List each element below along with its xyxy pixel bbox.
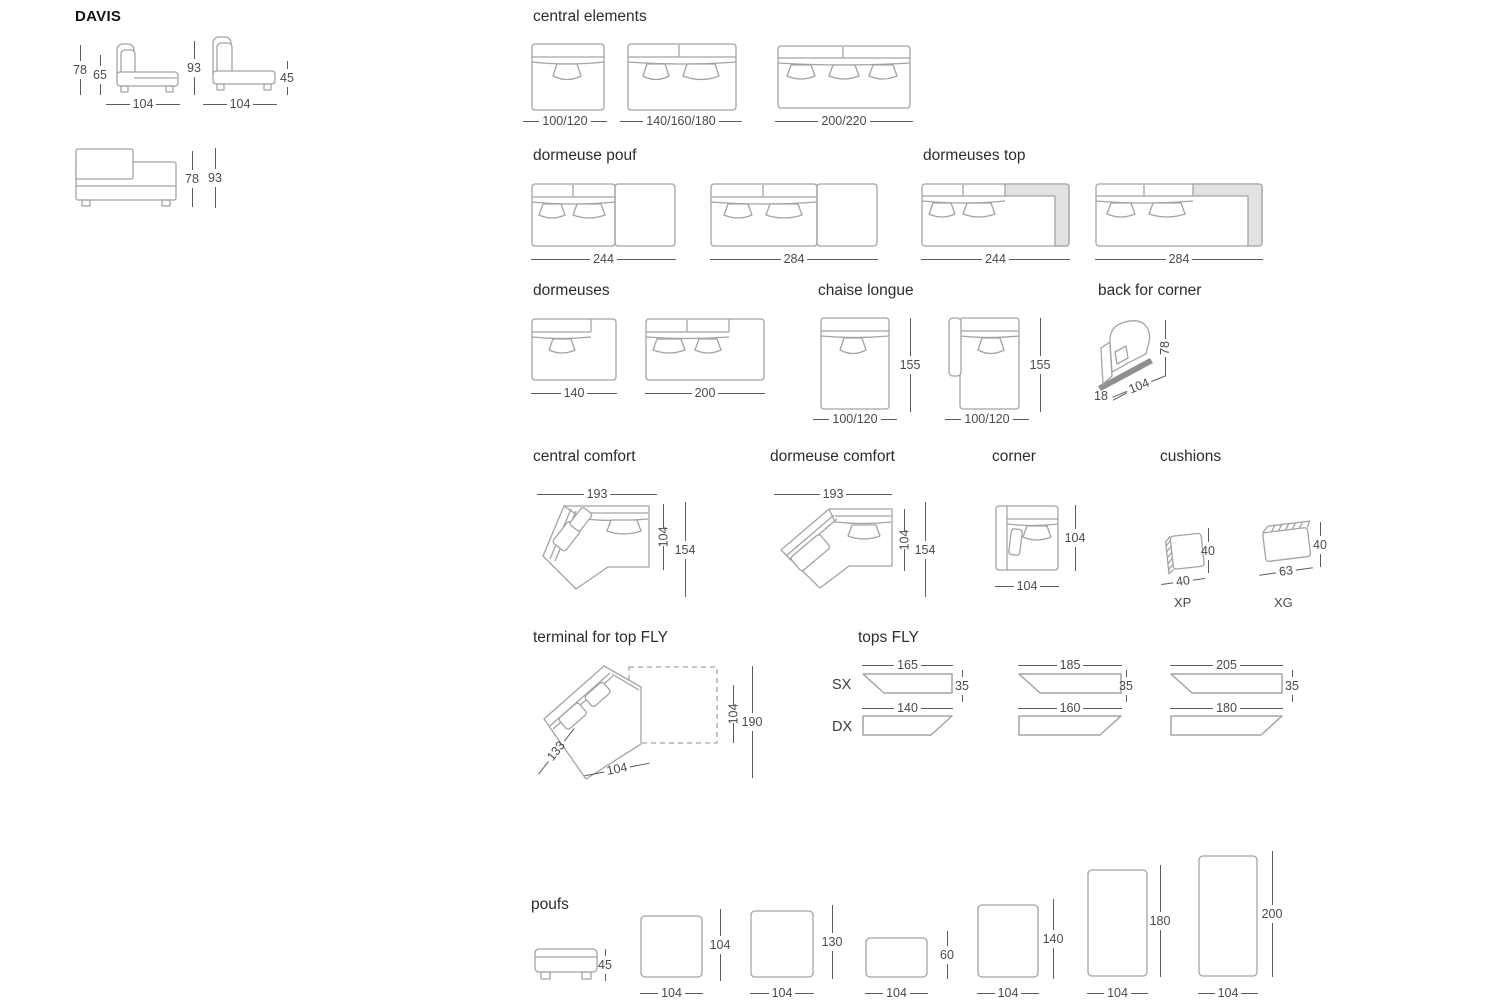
chaise-longue-2-drawing xyxy=(948,317,1020,410)
side-view-high-element-drawing xyxy=(203,34,279,96)
dormeuse-comfort-drawing xyxy=(772,498,894,600)
top-fly-3-dx-drawing xyxy=(1170,715,1284,737)
cushion-xp-code: XP xyxy=(1174,595,1191,610)
top-fly-1-height-dim: 35 xyxy=(949,670,975,702)
dormeuse-top-1-drawing xyxy=(921,183,1070,247)
section-title-dormeuse-comfort: dormeuse comfort xyxy=(770,448,895,466)
front-total-height-dim: 93 xyxy=(202,148,228,208)
terminal-total-depth-dim: 190 xyxy=(739,666,765,778)
pouf-4-depth-dim: 140 xyxy=(1040,899,1066,979)
front-view-element-drawing xyxy=(75,148,177,210)
pouf-5-drawing xyxy=(1087,869,1148,977)
side-high-width-dim: 104 xyxy=(203,97,277,111)
cushion-xp-height-dim: 40 xyxy=(1195,528,1221,573)
dormeuse-2-drawing xyxy=(645,318,765,381)
dormeuse-1-width-dim: 140 xyxy=(531,386,617,400)
chaise-longue-1-drawing xyxy=(820,317,890,410)
back-for-corner-thickness-dim: 18 xyxy=(1094,389,1108,403)
dormeuse-2-width-dim: 200 xyxy=(645,386,765,400)
dormeuse-pouf-1-width-dim: 244 xyxy=(531,252,676,266)
corner-drawing xyxy=(995,505,1059,571)
section-title-dormeuse-pouf: dormeuse pouf xyxy=(533,147,636,165)
central-element-3-width-dim: 200/220 xyxy=(775,114,913,128)
pouf-5-depth-dim: 180 xyxy=(1147,865,1173,977)
pouf-5-width-dim: 104 xyxy=(1087,986,1148,1000)
central-element-1-width-dim: 100/120 xyxy=(523,114,607,128)
top-fly-2-height-dim: 35 xyxy=(1113,670,1139,702)
top-fly-2-dx-drawing xyxy=(1018,715,1123,737)
top-fly-2-sx-drawing xyxy=(1018,673,1123,695)
tops-fly-dx-label: DX xyxy=(832,719,852,735)
section-title-cushions: cushions xyxy=(1160,448,1221,466)
pouf-1-depth-dim: 104 xyxy=(707,909,733,981)
dormeuse-top-1-width-dim: 244 xyxy=(921,252,1070,266)
top-fly-3-height-dim: 35 xyxy=(1279,670,1305,702)
top-fly-1-dx-width-dim: 140 xyxy=(862,701,953,715)
pouf-3-drawing xyxy=(865,937,928,978)
top-fly-3-dx-width-dim: 180 xyxy=(1170,701,1283,715)
back-for-corner-height-dim: 78 xyxy=(1152,320,1178,376)
side-view-element-drawing xyxy=(106,40,180,98)
pouf-side-view-drawing xyxy=(534,948,598,982)
section-title-corner: corner xyxy=(992,448,1036,466)
pouf-2-drawing xyxy=(750,910,814,978)
side-high-back-height-dim: 93 xyxy=(181,41,207,95)
pouf-2-width-dim: 104 xyxy=(750,986,814,1000)
pouf-2-depth-dim: 130 xyxy=(819,905,845,979)
central-comfort-drawing xyxy=(535,498,657,600)
chaise-longue-1-width-dim: 100/120 xyxy=(813,412,897,426)
pouf-3-width-dim: 104 xyxy=(865,986,928,1000)
dormeuse-pouf-1-drawing xyxy=(531,183,676,247)
top-fly-2-dx-width-dim: 160 xyxy=(1018,701,1122,715)
side-cushion-height-dim: 65 xyxy=(87,55,113,95)
side-width-dim: 104 xyxy=(106,97,180,111)
dormeuse-comfort-total-depth-dim: 154 xyxy=(912,502,938,597)
top-fly-1-dx-drawing xyxy=(862,715,954,737)
section-title-poufs: poufs xyxy=(531,896,569,914)
dormeuse-pouf-2-width-dim: 284 xyxy=(710,252,878,266)
cushion-xg-code: XG xyxy=(1274,595,1293,610)
side-high-seat-height-dim: 45 xyxy=(274,61,300,95)
pouf-side-height-dim: 45 xyxy=(592,949,618,981)
corner-width-dim: 104 xyxy=(995,579,1059,593)
corner-depth-dim: 104 xyxy=(1062,505,1088,571)
section-title-terminal-top-fly: terminal for top FLY xyxy=(533,629,668,647)
central-element-1-drawing xyxy=(531,43,605,111)
pouf-1-width-dim: 104 xyxy=(640,986,703,1000)
pouf-6-drawing xyxy=(1198,855,1258,977)
section-title-chaise-longue: chaise longue xyxy=(818,282,914,300)
tops-fly-sx-label: SX xyxy=(832,677,851,693)
central-element-2-drawing xyxy=(627,43,737,111)
davis-spec-sheet: DAVIS 78 65 104 93 45 104 78 93 cent xyxy=(0,0,1504,1003)
central-comfort-total-depth-dim: 154 xyxy=(672,502,698,597)
section-title-central-comfort: central comfort xyxy=(533,448,636,466)
central-element-2-width-dim: 140/160/180 xyxy=(620,114,742,128)
dormeuse-top-2-width-dim: 284 xyxy=(1095,252,1263,266)
pouf-4-drawing xyxy=(977,904,1039,978)
top-fly-2-sx-width-dim: 185 xyxy=(1018,658,1122,672)
dormeuse-1-drawing xyxy=(531,318,617,381)
dormeuse-top-2-drawing xyxy=(1095,183,1263,247)
section-title-back-for-corner: back for corner xyxy=(1098,282,1201,300)
top-fly-3-sx-drawing xyxy=(1170,673,1284,695)
chaise-longue-2-width-dim: 100/120 xyxy=(945,412,1029,426)
section-title-central-elements: central elements xyxy=(533,8,647,26)
pouf-6-depth-dim: 200 xyxy=(1259,851,1285,977)
section-title-tops-fly: tops FLY xyxy=(858,629,919,647)
top-fly-1-sx-drawing xyxy=(862,673,954,695)
dormeuse-pouf-2-drawing xyxy=(710,183,878,247)
pouf-6-width-dim: 104 xyxy=(1198,986,1258,1000)
top-fly-3-sx-width-dim: 205 xyxy=(1170,658,1283,672)
page-title: DAVIS xyxy=(75,8,121,25)
chaise-longue-2-depth-dim: 155 xyxy=(1027,318,1053,412)
section-title-dormeuses-top: dormeuses top xyxy=(923,147,1026,165)
top-fly-1-sx-width-dim: 165 xyxy=(862,658,953,672)
chaise-longue-1-depth-dim: 155 xyxy=(897,318,923,412)
pouf-4-width-dim: 104 xyxy=(977,986,1039,1000)
pouf-3-depth-dim: 60 xyxy=(934,931,960,979)
section-title-dormeuses: dormeuses xyxy=(533,282,610,300)
central-element-3-drawing xyxy=(777,45,911,109)
pouf-1-drawing xyxy=(640,915,703,978)
